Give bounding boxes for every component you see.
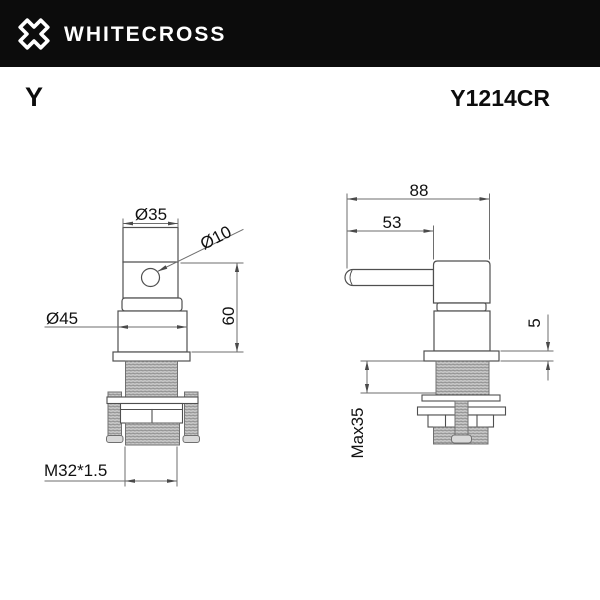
deck-flange-front — [113, 352, 190, 361]
washer-side — [422, 395, 500, 401]
valve-body-side — [434, 261, 491, 303]
datasheet-page: WHITECROSS Y Y1214CR — [0, 0, 600, 600]
dim-total-depth-label: 88 — [410, 181, 429, 200]
front-view: Ø35 Ø10 Ø45 60 M32*1.5 — [44, 205, 243, 486]
handle-lever — [345, 270, 434, 286]
dim-handle-length-label: 53 — [383, 213, 402, 232]
side-view: 88 53 5 Max35 — [345, 181, 553, 459]
thread-shaft-upper-front — [126, 361, 178, 397]
stud-cap-left — [107, 436, 124, 443]
dim-height-label: 60 — [219, 307, 238, 326]
stud-center-side — [455, 401, 468, 435]
title-row: Y Y1214CR — [0, 67, 600, 117]
dim-hole-diameter-label: Ø10 — [197, 222, 234, 254]
series-label: Y — [25, 82, 43, 113]
thread-shaft-upper-side — [436, 361, 489, 395]
collar-side — [437, 303, 486, 311]
dim-thread-label: M32*1.5 — [44, 461, 107, 480]
base-cylinder-front — [118, 311, 187, 352]
thread-shaft-lower-front — [126, 423, 180, 445]
collar-front — [122, 298, 182, 311]
stud-cap-side — [452, 435, 472, 443]
mounting-nut-front — [121, 404, 183, 424]
handle-pin-hole — [142, 269, 160, 287]
valve-body-front — [123, 228, 178, 299]
dim-base-diameter-label: Ø45 — [46, 309, 78, 328]
dim-top-diameter-label: Ø35 — [135, 205, 167, 224]
deck-flange-side — [424, 351, 499, 361]
dim-max-panel-thickness-label: Max35 — [348, 407, 367, 458]
stud-cap-right — [183, 436, 200, 443]
base-cylinder-side — [434, 311, 490, 351]
brand-name: WHITECROSS — [64, 23, 226, 47]
whitecross-x-icon — [14, 14, 54, 54]
washer-front — [107, 397, 198, 404]
dim-flange-thickness-label: 5 — [525, 318, 544, 327]
header-bar: WHITECROSS — [0, 0, 600, 67]
model-code-label: Y1214CR — [450, 85, 550, 112]
